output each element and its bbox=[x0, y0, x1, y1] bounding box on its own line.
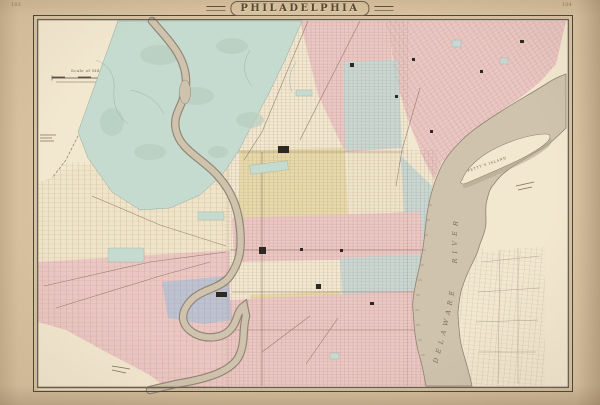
square-marker bbox=[520, 40, 524, 43]
park-south-square bbox=[330, 353, 339, 359]
city-hall-marker bbox=[259, 247, 266, 254]
square-marker bbox=[370, 302, 374, 305]
square-marker bbox=[340, 249, 343, 252]
title-rule-left bbox=[206, 6, 225, 11]
square-marker bbox=[316, 284, 321, 289]
camden-street-grid bbox=[459, 246, 545, 386]
park-north-square bbox=[296, 90, 312, 96]
square-marker bbox=[412, 58, 415, 61]
almshouse-marker bbox=[216, 292, 227, 297]
page-title: PHILADELPHIA bbox=[230, 1, 369, 16]
norris-square bbox=[452, 40, 461, 47]
scanned-atlas-page: { "page": { "title": "PHILADELPHIA", "pl… bbox=[0, 0, 600, 405]
title-rule-right bbox=[375, 6, 394, 11]
fairhill-square bbox=[500, 58, 508, 64]
plate-number-left: 103 bbox=[11, 3, 21, 8]
park-west-square bbox=[198, 212, 224, 220]
park-with-pond bbox=[108, 248, 144, 262]
square-marker bbox=[430, 130, 433, 133]
square-marker bbox=[480, 70, 483, 73]
square-marker bbox=[300, 248, 303, 251]
square-marker bbox=[395, 95, 398, 98]
philadelphia-map: Scale of Miles bbox=[0, 0, 600, 405]
plate-number-right: 104 bbox=[562, 3, 572, 8]
girard-college-marker bbox=[278, 146, 289, 153]
fairmount-reservoir-pool bbox=[180, 80, 191, 104]
square-marker bbox=[350, 63, 354, 67]
map-title-banner: PHILADELPHIA bbox=[206, 1, 393, 16]
